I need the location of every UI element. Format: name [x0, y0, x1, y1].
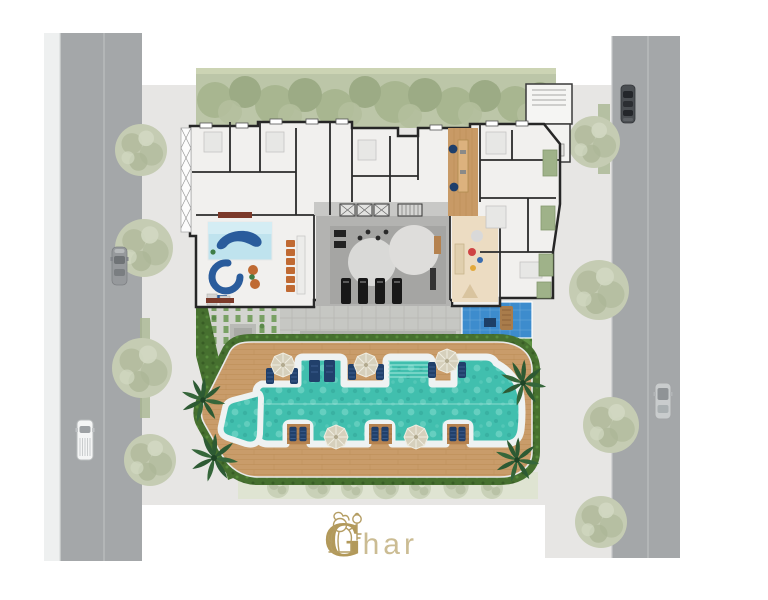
pool-deck-area — [181, 342, 546, 482]
brand-rest: har — [363, 528, 418, 562]
sun-lounger — [449, 427, 456, 441]
tree — [124, 434, 176, 486]
building-floorplan — [181, 119, 560, 307]
car-silver — [654, 383, 673, 419]
lion-key-icon — [324, 510, 368, 556]
louver-screen — [181, 128, 191, 232]
plant — [249, 274, 255, 280]
umbrella-icon — [435, 349, 459, 373]
gym-rug — [389, 225, 439, 275]
sun-lounger — [458, 427, 465, 441]
tree — [568, 116, 620, 168]
cafe-lobby — [448, 128, 478, 216]
tree — [583, 397, 639, 453]
gym-rug — [348, 238, 396, 286]
toy — [470, 265, 476, 271]
elevator-core — [340, 204, 422, 216]
hedge-strip-top — [196, 68, 556, 128]
weight-rack — [334, 230, 346, 237]
playroom — [452, 216, 498, 302]
sun-lounger — [299, 427, 306, 441]
pool-bench — [484, 318, 496, 327]
car-dark — [621, 85, 635, 123]
site-plan-canvas: Ghar — [0, 0, 768, 600]
gym-bench — [434, 236, 441, 254]
red-planter — [218, 212, 252, 218]
pouf — [250, 279, 260, 289]
pool-wedge — [221, 393, 261, 444]
wardrobe — [455, 244, 464, 274]
toy — [477, 257, 483, 263]
umbrella-icon — [271, 353, 295, 377]
tree — [112, 338, 172, 398]
road-left — [44, 33, 142, 561]
counter-island — [458, 140, 468, 192]
tree — [569, 260, 629, 320]
sun-lounger — [371, 427, 378, 441]
umbrella-icon — [354, 353, 378, 377]
brand-logo: Ghar — [324, 510, 504, 562]
umbrella-icon — [324, 425, 348, 449]
tree — [115, 124, 167, 176]
red-planter — [206, 298, 234, 303]
car-white-van — [76, 420, 95, 460]
pouf — [248, 265, 258, 275]
sidewalk-left — [44, 33, 60, 561]
cafe-table — [450, 183, 459, 192]
car-gray-sedan — [111, 247, 129, 285]
toy — [468, 248, 476, 256]
sun-lounger — [381, 427, 388, 441]
bar-counter — [297, 236, 305, 294]
tree — [575, 496, 627, 548]
cafe-table — [449, 145, 458, 154]
umbrella-icon — [404, 425, 428, 449]
sun-lounger — [289, 427, 296, 441]
